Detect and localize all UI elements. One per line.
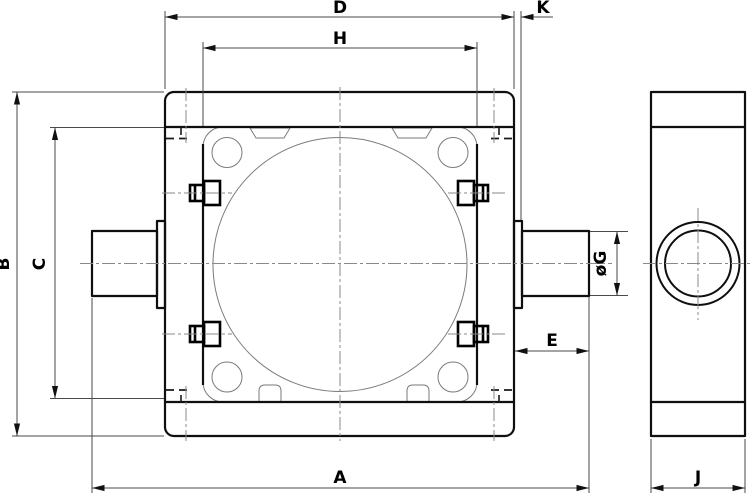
drawing-canvas: D K H B C: [0, 0, 752, 494]
dim-label-a: A: [333, 468, 347, 488]
left-hub: [157, 221, 165, 308]
bottom-lug-left: [259, 385, 281, 401]
corner-hole-top-right: [438, 138, 468, 168]
dim-k: K: [521, 0, 553, 220]
top-lug-left: [250, 128, 290, 138]
bottom-lug-right: [407, 385, 429, 401]
dim-g: øG: [590, 232, 628, 296]
front-centerlines: [80, 87, 612, 441]
corner-hole-bottom-right: [438, 362, 468, 392]
dimensions: D K H B C: [0, 0, 745, 493]
dim-j: J: [651, 439, 745, 493]
top-lug-right: [392, 128, 432, 138]
dim-label-j: J: [694, 468, 701, 488]
corner-hole-bottom-left: [212, 362, 242, 392]
dim-e: E: [515, 331, 589, 351]
dim-label-c: C: [30, 258, 50, 270]
technical-drawing: D K H B C: [0, 0, 752, 494]
dim-label-d: D: [333, 0, 347, 18]
corner-hole-top-left: [212, 138, 242, 168]
dim-label-h: H: [333, 29, 347, 49]
housing-side-view: [643, 92, 752, 436]
right-hub: [514, 221, 522, 308]
dim-label-g: øG: [591, 251, 611, 277]
dim-label-b: B: [0, 258, 14, 271]
dim-label-k: K: [536, 0, 550, 18]
dim-label-e: E: [546, 331, 558, 351]
housing-front-view: [80, 87, 612, 441]
